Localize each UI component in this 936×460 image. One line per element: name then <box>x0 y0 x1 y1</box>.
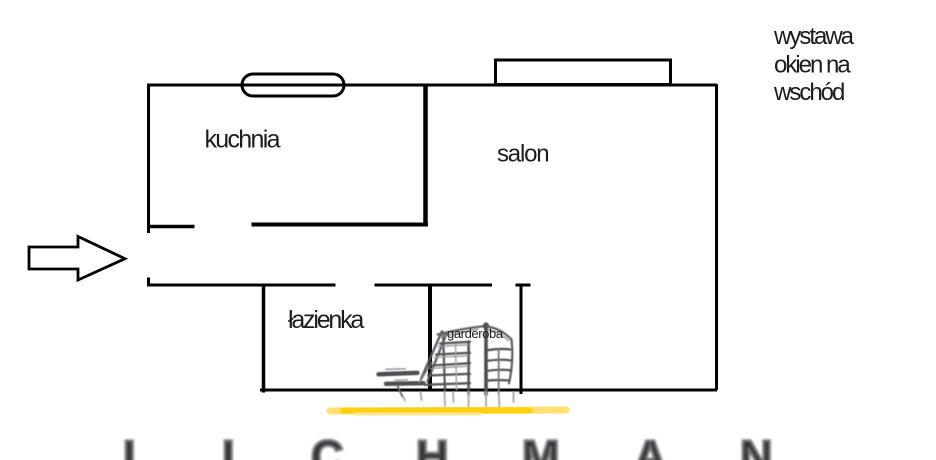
svg-text:okien na: okien na <box>774 52 851 79</box>
svg-text:łazienka: łazienka <box>288 306 364 334</box>
svg-text:I: I <box>222 431 235 460</box>
svg-text:A: A <box>634 431 667 460</box>
svg-text:N: N <box>740 431 773 460</box>
svg-text:M: M <box>522 431 560 460</box>
svg-text:salon: salon <box>497 141 548 168</box>
svg-text:wystawa: wystawa <box>773 23 855 50</box>
svg-text:C: C <box>311 431 344 460</box>
svg-text:garderoba: garderoba <box>447 326 504 341</box>
svg-text:L: L <box>123 431 151 460</box>
svg-text:wschód: wschód <box>773 79 844 106</box>
svg-text:kuchnia: kuchnia <box>205 126 281 154</box>
svg-text:H: H <box>416 431 449 460</box>
